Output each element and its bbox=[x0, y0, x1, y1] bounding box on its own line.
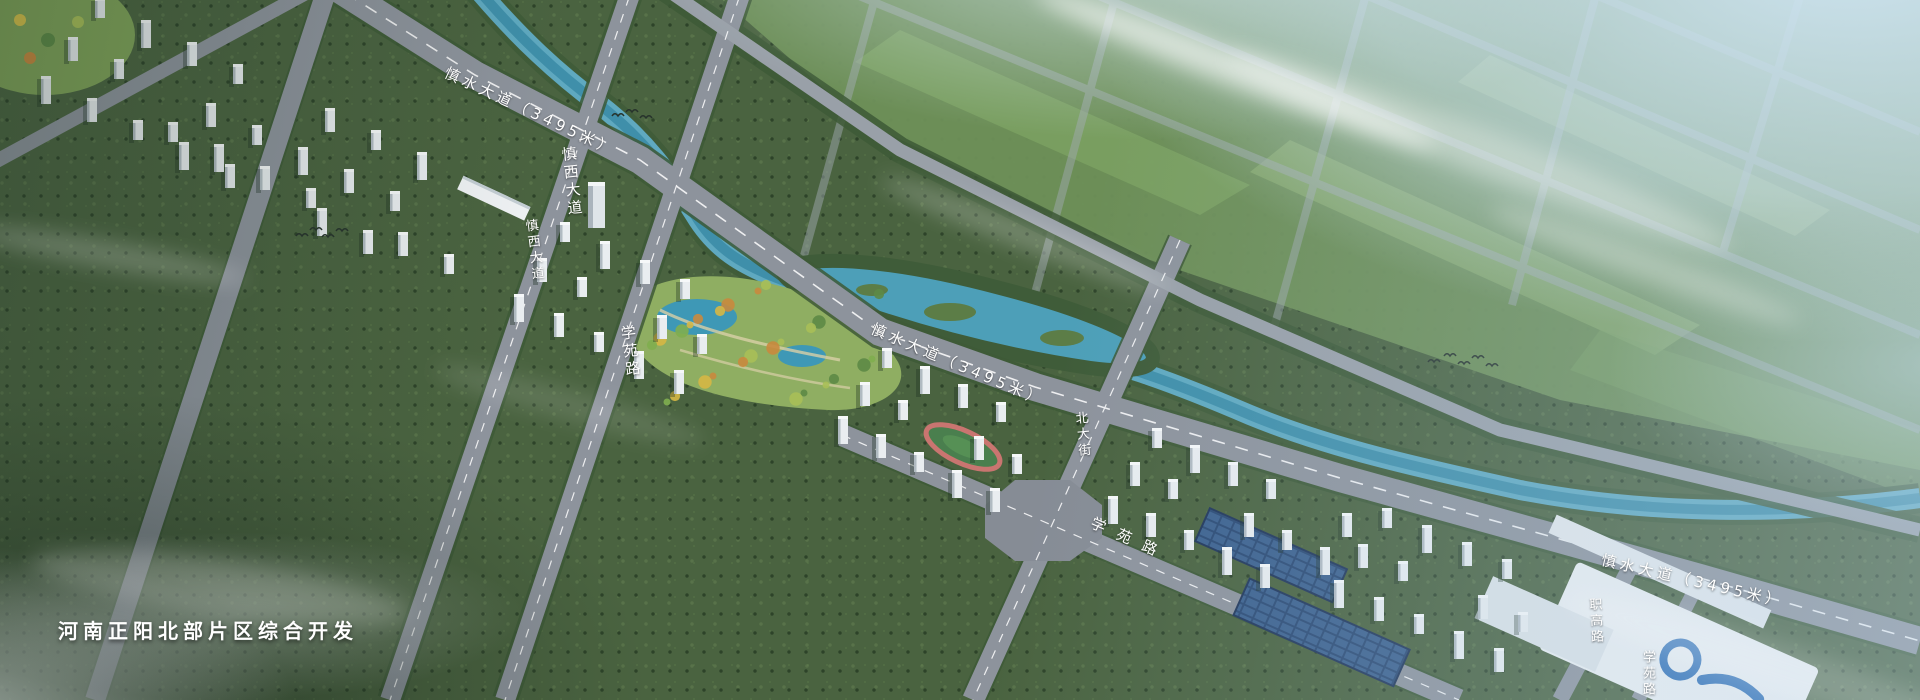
road-label-xueyuan-east: 学苑路 bbox=[1638, 650, 1657, 698]
road-label-beida-street: 北大街 bbox=[1070, 410, 1093, 459]
road-label-zhigao-road: 职高路 bbox=[1584, 597, 1605, 646]
aerial-rendering: 慎水大道（3495米） 慎水大道（3495米） 慎水大道（3495米） 慎西大道… bbox=[0, 0, 1920, 700]
intersection-plaza bbox=[985, 480, 1102, 561]
project-caption: 河南正阳北部片区综合开发 bbox=[58, 615, 358, 644]
masterplan-scene bbox=[0, 0, 1920, 700]
